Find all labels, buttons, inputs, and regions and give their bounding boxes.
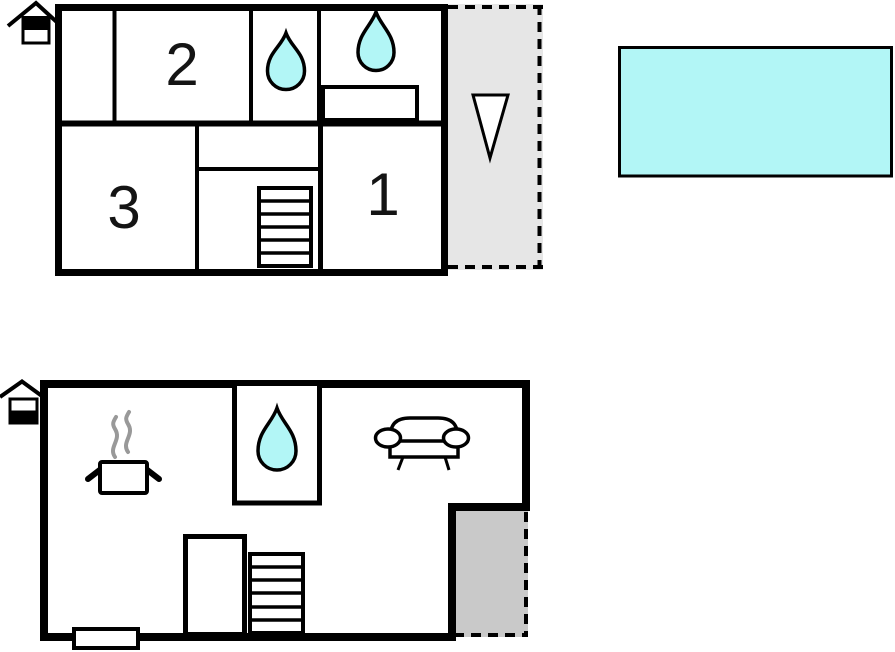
sink-counter-icon <box>323 87 417 120</box>
balcony-terrace <box>448 4 543 270</box>
room-label-bedroom-3: 3 <box>107 174 140 241</box>
floor-plan-drawing: 2 3 1 <box>0 0 895 652</box>
house-roof <box>0 382 46 400</box>
house-ground-floor-highlight <box>10 411 37 424</box>
pot-body <box>100 462 147 493</box>
covered-niche <box>454 511 528 637</box>
wardrobe-icon <box>186 537 245 635</box>
ground-floor-plan <box>0 382 528 649</box>
entrance-step-icon <box>74 629 138 648</box>
staircase-icon <box>259 188 311 266</box>
floor-plan-page: 2 3 1 <box>0 0 895 652</box>
staircase-icon <box>250 554 303 633</box>
house-floor-indicator-ground-icon <box>0 382 46 424</box>
niche-fill <box>456 511 528 637</box>
sofa-armrest <box>444 429 469 447</box>
house-upper-floor-highlight <box>23 18 49 31</box>
sofa-armrest <box>376 429 401 447</box>
house-floor-indicator-upper-icon <box>8 3 60 43</box>
room-label-bedroom-1: 1 <box>366 161 399 228</box>
upper-floor-plan: 2 3 1 <box>8 3 543 273</box>
room-label-bedroom-2: 2 <box>165 31 198 98</box>
swimming-pool-icon <box>620 48 892 177</box>
